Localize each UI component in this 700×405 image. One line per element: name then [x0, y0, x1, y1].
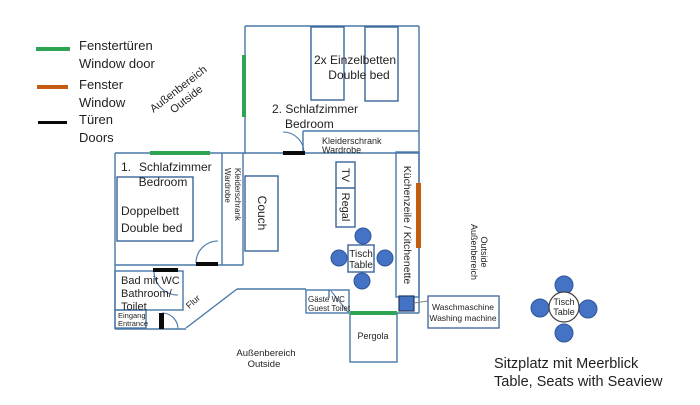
seat-indoor-top: [355, 228, 371, 244]
bedroom1-bed-label-en: Double bed: [121, 221, 182, 235]
seat-outdoor-bottom: [555, 324, 573, 342]
legend-window-label-de: Fenster: [79, 77, 124, 92]
shelf-label: Regal: [339, 193, 351, 222]
door-entrance: [159, 313, 164, 329]
bedroom1-bed-label-de: Doppelbett: [121, 204, 180, 218]
entrance-label-en: Entrance: [118, 319, 148, 328]
bathroom-label-2: Bathroom/: [121, 288, 173, 300]
bedroom2-name-de: 2. Schlafzimmer: [272, 102, 358, 116]
legend-window-door-line: [36, 47, 70, 51]
legend-window-door-label-en: Window door: [79, 56, 156, 71]
floor-plan-page: Fenstertüren Window door Fenster Window …: [0, 0, 700, 405]
door-bedroom2: [283, 151, 305, 155]
guest-wc-label-de: Gäste WC: [308, 295, 345, 304]
legend-window-door-label-de: Fenstertüren: [79, 38, 153, 53]
window-door-pergola: [350, 311, 397, 315]
outdoor-seating: Tisch Table: [531, 276, 597, 342]
outside-label-top-left: Außenbereich Outside: [148, 64, 217, 126]
washer-callout-line: [414, 301, 428, 303]
washer-label-de: Waschmaschine: [432, 302, 494, 312]
guest-wc-label-en: Guest Toilet: [308, 304, 351, 313]
seat-outdoor-left: [531, 299, 549, 317]
bedroom1-number: 1.: [121, 160, 131, 174]
caption-de: Sitzplatz mit Meerblick: [494, 356, 639, 372]
pergola-label: Pergola: [357, 331, 388, 341]
legend-door-line: [38, 121, 67, 124]
bedroom2-name-en: Bedroom: [285, 117, 334, 131]
kitchenette-label: Küchenzeile / Kitchenette: [401, 166, 413, 285]
bedroom2-bed-label-en: Double bed: [328, 68, 389, 82]
washer-callout-box: [428, 296, 499, 328]
floor-plan-svg: Fenstertüren Window door Fenster Window …: [0, 0, 700, 405]
legend: Fenstertüren Window door Fenster Window …: [36, 38, 156, 145]
legend-window-label-en: Window: [79, 95, 126, 110]
tv-label: TV: [339, 168, 351, 183]
outside-label-right: Außenbereich Outside: [469, 224, 489, 280]
bedroom1-name-en: Bedroom: [139, 175, 188, 189]
entrance-door-arc: [162, 313, 178, 329]
bedroom2-wardrobe-en: Wardrobe: [322, 145, 361, 155]
bedroom1-door-arc: [196, 241, 218, 263]
seat-indoor-bottom: [354, 273, 370, 289]
washing-machine-symbol: [399, 296, 414, 311]
washer-label-en: Washing machine: [429, 313, 497, 323]
bathroom-label-1: Bad mit WC: [121, 275, 180, 287]
outside-right-en: Outside: [479, 236, 489, 267]
bedroom1-name-de: Schlafzimmer: [139, 160, 212, 174]
dining-table-label-en: Table: [349, 260, 373, 271]
bedroom1-wardrobe-de: Kleiderschrank: [233, 168, 242, 222]
outside-bottom-left-de: Außenbereich: [236, 348, 295, 359]
legend-door-label-de: Türen: [79, 112, 113, 127]
caption-en: Table, Seats with Seaview: [494, 374, 663, 390]
dining-table-label-de: Tisch: [349, 249, 373, 260]
legend-window-line: [37, 85, 68, 89]
window-door-bedroom2: [242, 55, 246, 117]
couch-label: Couch: [255, 196, 269, 231]
door-bedroom1: [196, 262, 218, 266]
seat-outdoor-right: [579, 300, 597, 318]
outside-right-de: Außenbereich: [469, 224, 479, 280]
outdoor-table-label-en: Table: [553, 307, 575, 317]
bedroom1-wardrobe-en: Wardrobe: [223, 168, 232, 203]
bedroom2-bed-label-de: 2x Einzelbetten: [314, 53, 396, 67]
legend-door-label-en: Doors: [79, 130, 114, 145]
window-kitchen: [416, 183, 421, 248]
hall-label: Flur: [184, 293, 202, 311]
outdoor-table-label-de: Tisch: [553, 297, 574, 307]
door-bathroom: [153, 268, 178, 272]
bedroom2-door-arc: [283, 132, 304, 153]
outside-label-bottom-left: Außenbereich Outside: [236, 348, 295, 370]
window-door-bedroom1: [150, 151, 210, 155]
outside-bottom-left-en: Outside: [248, 359, 281, 370]
seat-indoor-right: [377, 250, 393, 266]
seat-outdoor-top: [555, 276, 573, 294]
seat-indoor-left: [331, 250, 347, 266]
